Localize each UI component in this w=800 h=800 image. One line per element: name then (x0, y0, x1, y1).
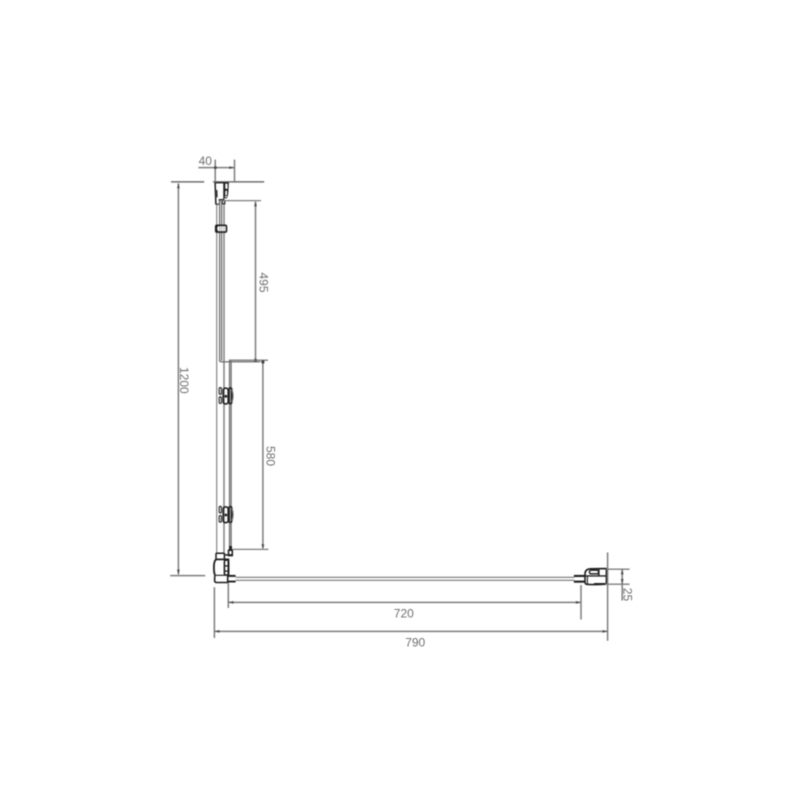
svg-text:580: 580 (264, 446, 278, 466)
svg-text:40: 40 (199, 154, 213, 168)
svg-text:790: 790 (405, 636, 425, 650)
svg-text:720: 720 (394, 607, 414, 621)
svg-text:25: 25 (621, 588, 635, 602)
svg-text:1200: 1200 (177, 367, 191, 394)
svg-text:495: 495 (256, 273, 270, 293)
